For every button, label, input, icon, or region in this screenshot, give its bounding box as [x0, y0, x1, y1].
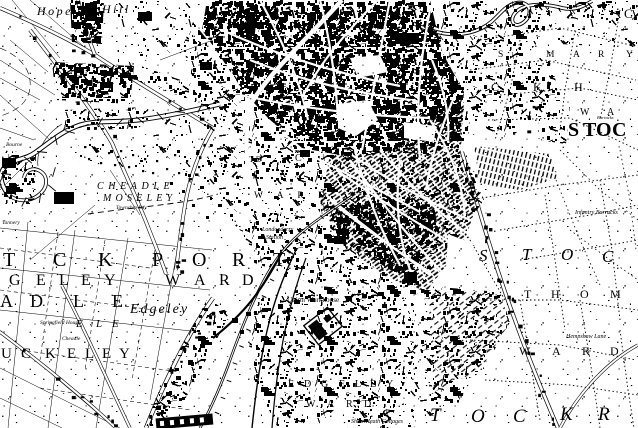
svg-text:Hope: Hope: [36, 4, 73, 18]
svg-text:M: M: [610, 287, 621, 301]
svg-text:Londonderry: Londonderry: [261, 227, 294, 233]
svg-text:Hempshaw Lane: Hempshaw Lane: [565, 334, 607, 340]
svg-text:MOSELEY: MOSELEY: [102, 193, 176, 204]
svg-text:W: W: [519, 344, 531, 358]
svg-text:O: O: [580, 287, 589, 301]
svg-text:C: C: [53, 249, 66, 271]
svg-text:Edgeley: Edgeley: [129, 302, 189, 317]
svg-text:O: O: [561, 245, 573, 264]
svg-text:H: H: [574, 80, 583, 94]
svg-text:W: W: [306, 399, 316, 410]
svg-text:O: O: [471, 406, 485, 427]
svg-text:Union Workhouse: Union Workhouse: [287, 296, 339, 304]
svg-text:T: T: [3, 249, 15, 271]
svg-text:Y: Y: [386, 379, 393, 390]
svg-text:E: E: [370, 379, 376, 390]
svg-text:K: K: [559, 404, 574, 425]
svg-text:D: D: [304, 379, 311, 390]
svg-text:Y: Y: [626, 50, 633, 60]
svg-text:E: E: [67, 346, 76, 362]
svg-text:R: R: [232, 249, 246, 271]
svg-text:A: A: [573, 50, 580, 60]
svg-text:R: R: [582, 344, 590, 358]
svg-text:K: K: [533, 80, 542, 94]
svg-text:Township Bdy: Township Bdy: [116, 205, 147, 211]
svg-text:A: A: [327, 399, 335, 410]
svg-text:L: L: [355, 379, 361, 390]
svg-text:T: T: [522, 245, 533, 264]
svg-text:S: S: [498, 50, 503, 60]
svg-text:T D: T D: [249, 155, 262, 164]
svg-text:G: G: [9, 272, 21, 289]
svg-text:C: C: [602, 247, 614, 266]
svg-text:L: L: [85, 346, 94, 362]
svg-text:U: U: [1, 346, 12, 362]
svg-text:O: O: [596, 119, 612, 141]
svg-text:Y: Y: [119, 346, 130, 362]
svg-text:Springfield House: Springfield House: [40, 319, 80, 326]
svg-text:S: S: [479, 246, 488, 265]
svg-text:Infantry Barracks: Infantry Barracks: [574, 209, 618, 216]
svg-text:Station: Station: [266, 235, 283, 241]
svg-text:L: L: [59, 272, 69, 289]
svg-text:C: C: [624, 6, 633, 21]
svg-text:C: C: [21, 346, 31, 362]
svg-text:C: C: [491, 80, 499, 94]
svg-text:E: E: [102, 346, 111, 362]
svg-text:Brinksway: Brinksway: [58, 74, 82, 80]
svg-text:E: E: [36, 272, 46, 289]
svg-text:E: E: [111, 318, 119, 330]
svg-text:D: D: [364, 399, 371, 410]
svg-text:E: E: [112, 291, 123, 311]
svg-text:Y: Y: [104, 272, 116, 289]
svg-text:Bourne: Bourne: [6, 142, 23, 148]
svg-text:L: L: [95, 318, 102, 330]
svg-text:D: D: [242, 272, 254, 289]
svg-text:R: R: [346, 399, 353, 410]
svg-text:S: S: [568, 119, 579, 141]
svg-text:W: W: [580, 107, 590, 118]
svg-text:C: C: [612, 119, 626, 141]
svg-text:Cheadle: Cheadle: [62, 336, 81, 342]
svg-text:C: C: [295, 153, 302, 164]
svg-text:T: T: [583, 119, 597, 141]
svg-text:K: K: [45, 346, 56, 362]
svg-text:L: L: [73, 291, 84, 311]
svg-text:Tannery: Tannery: [2, 220, 20, 226]
svg-text:D: D: [610, 344, 619, 358]
svg-text:A: A: [0, 291, 13, 311]
svg-text:T: T: [524, 287, 532, 301]
svg-text:T: T: [430, 405, 442, 426]
svg-text:Shaw Heath Cottages: Shaw Heath Cottages: [351, 419, 404, 425]
svg-text:W A R D: W A R D: [254, 191, 331, 201]
svg-text:CHEADLE: CHEADLE: [97, 181, 174, 192]
svg-text:E: E: [81, 272, 91, 289]
svg-text:E: E: [339, 379, 345, 390]
svg-text:Hill: Hill: [101, 2, 131, 16]
svg-text:K: K: [98, 249, 113, 271]
svg-text:R: R: [219, 272, 230, 289]
svg-text:P: P: [152, 249, 163, 271]
svg-text:E: E: [288, 379, 294, 390]
svg-text:R: R: [597, 404, 610, 425]
svg-text:O: O: [192, 249, 206, 271]
svg-text:T: T: [273, 249, 285, 271]
svg-text:W: W: [165, 272, 181, 289]
svg-text:M: M: [546, 50, 555, 60]
svg-text:H: H: [551, 287, 560, 301]
svg-text:A: A: [194, 272, 206, 289]
svg-text:D: D: [30, 291, 43, 311]
svg-text:A: A: [552, 344, 561, 358]
svg-text:R: R: [598, 50, 605, 60]
svg-text:G: G: [321, 379, 328, 390]
svg-text:C: C: [513, 406, 526, 427]
